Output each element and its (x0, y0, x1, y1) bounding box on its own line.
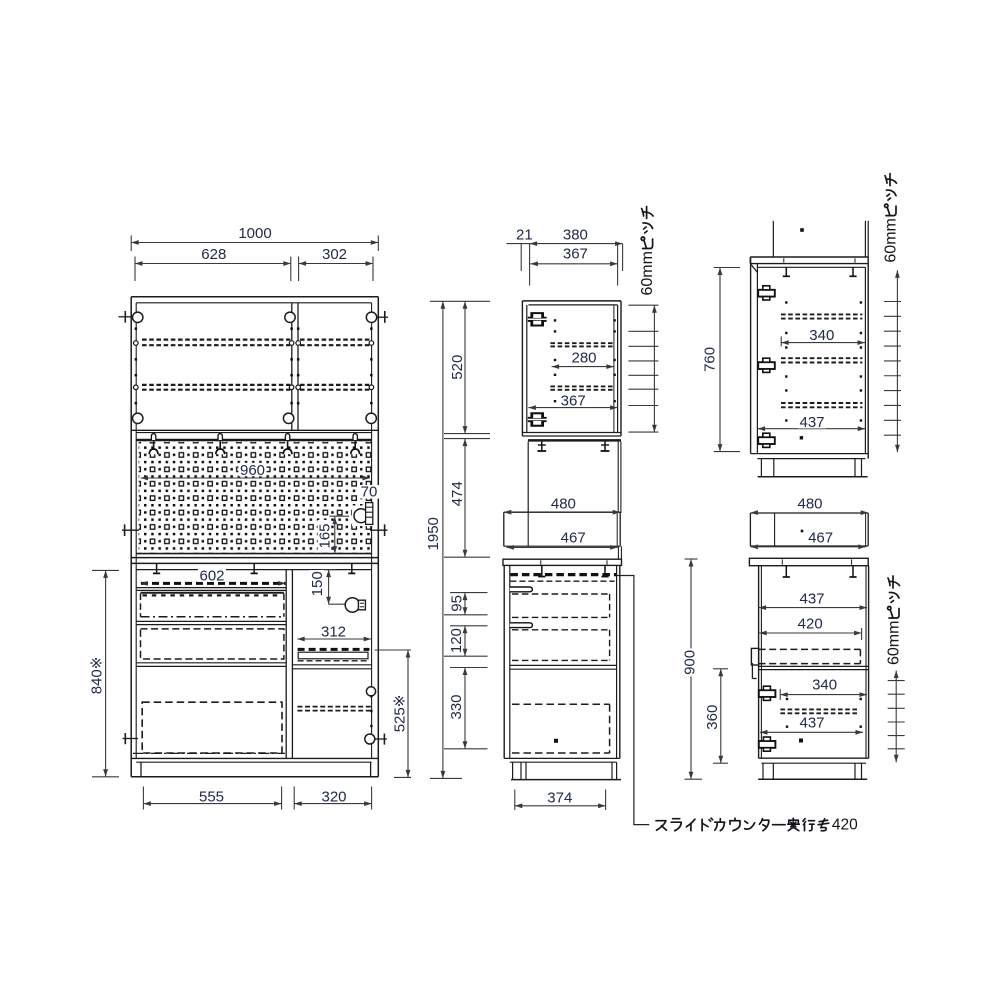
svg-text:374: 374 (547, 790, 572, 807)
svg-text:420: 420 (832, 816, 858, 833)
svg-text:280: 280 (571, 350, 596, 367)
svg-text:367: 367 (561, 392, 586, 409)
svg-text:480: 480 (551, 496, 576, 513)
svg-text:467: 467 (808, 530, 833, 547)
svg-text:340: 340 (809, 327, 834, 344)
svg-text:60mm: 60mm (886, 621, 903, 665)
svg-text:340: 340 (812, 677, 837, 694)
svg-text:437: 437 (799, 715, 824, 732)
svg-text:474: 474 (449, 481, 466, 506)
svg-text:555: 555 (199, 789, 224, 806)
svg-text:312: 312 (321, 624, 346, 641)
svg-text:120: 120 (448, 628, 465, 653)
svg-text:960: 960 (240, 462, 265, 479)
svg-text:602: 602 (199, 568, 224, 585)
svg-text:520: 520 (449, 355, 466, 380)
svg-text:840※: 840※ (89, 657, 106, 695)
svg-text:367: 367 (563, 245, 588, 262)
svg-text:60mm: 60mm (883, 218, 900, 262)
svg-text:380: 380 (563, 226, 588, 243)
svg-text:900: 900 (682, 650, 699, 675)
svg-text:1000: 1000 (238, 225, 271, 242)
svg-text:360: 360 (704, 705, 721, 730)
svg-text:95: 95 (449, 595, 466, 612)
svg-text:480: 480 (797, 496, 822, 513)
svg-text:437: 437 (799, 590, 824, 607)
svg-text:467: 467 (561, 530, 586, 547)
svg-text:70: 70 (361, 483, 378, 500)
svg-text:330: 330 (448, 694, 465, 719)
svg-text:420: 420 (798, 616, 823, 633)
svg-text:302: 302 (322, 246, 347, 263)
svg-text:320: 320 (321, 789, 346, 806)
svg-text:628: 628 (201, 246, 226, 263)
svg-text:525※: 525※ (392, 695, 409, 733)
svg-text:60mm: 60mm (639, 251, 656, 295)
svg-text:165: 165 (316, 523, 333, 548)
svg-text:150: 150 (309, 571, 326, 596)
svg-text:437: 437 (799, 414, 824, 431)
svg-text:21: 21 (516, 226, 533, 243)
svg-text:760: 760 (702, 347, 719, 372)
svg-text:1950: 1950 (425, 517, 442, 550)
